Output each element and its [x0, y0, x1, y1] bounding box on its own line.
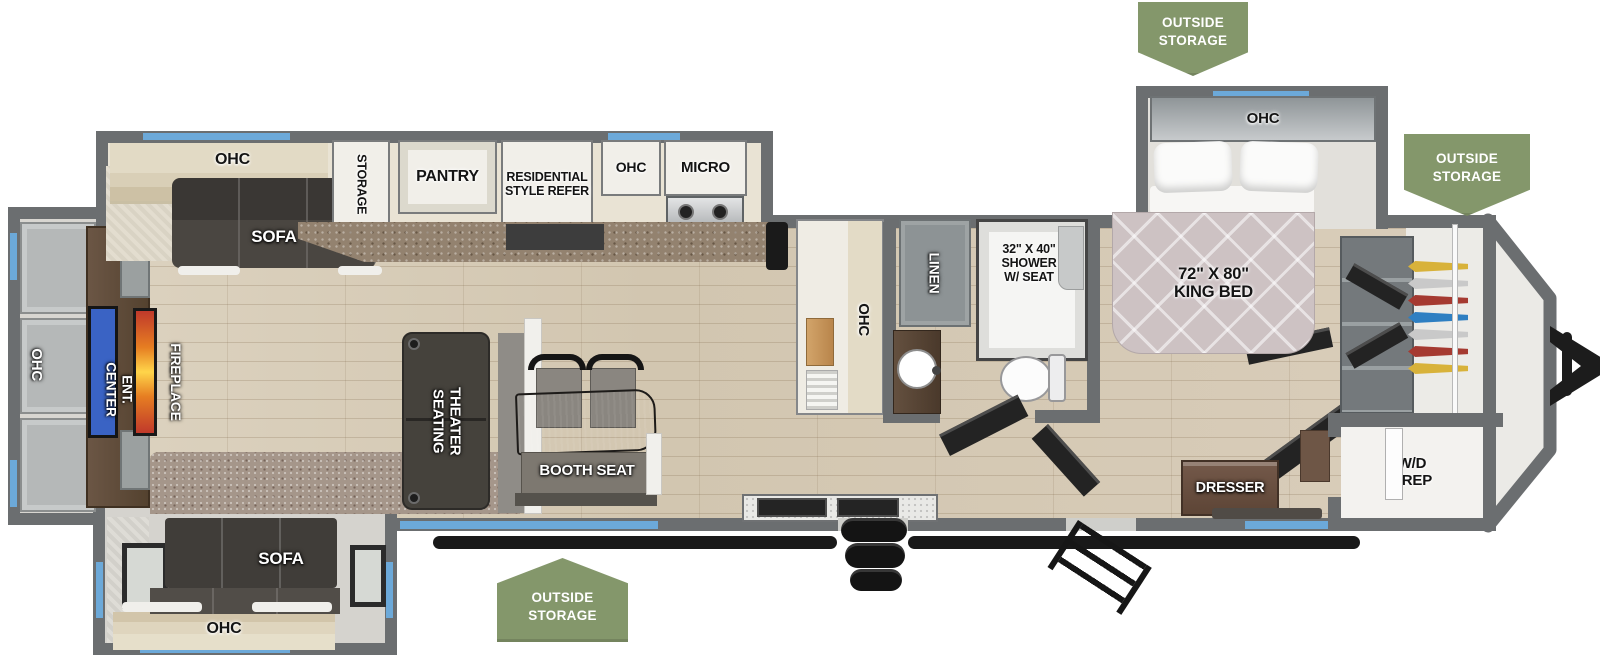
rear-ohc-cabinet [20, 222, 96, 314]
awning-rail [908, 536, 1360, 549]
dresser-label: DRESSER [1196, 480, 1265, 496]
toilet-tank [1048, 354, 1066, 402]
sofa-top-label: SOFA [251, 227, 297, 246]
clothes-item [1408, 311, 1468, 324]
front-nose-wall [1488, 220, 1550, 526]
fireplace-label: FIREPLACE [168, 343, 184, 421]
hitch-jack [1562, 332, 1572, 396]
ohc-bottom-label-wrap: OHC [113, 618, 335, 640]
refer-label: RESIDENTIAL STYLE REFER [505, 170, 589, 198]
window-accent [608, 133, 680, 140]
bed-bench [1300, 430, 1330, 482]
rear-ohc-label: OHC [27, 349, 44, 382]
booth-chair-back [528, 354, 586, 370]
clothes-item [1408, 260, 1468, 273]
shower-label: 32" X 40" SHOWER W/ SEAT [1001, 242, 1056, 284]
booth-table [515, 389, 657, 456]
sofa-bottom-label-wrap: SOFA [221, 550, 341, 568]
booth-label-wrap: BOOTH SEAT [521, 462, 653, 480]
badge-label: OUTSIDE STORAGE [528, 589, 597, 624]
badge-label: OUTSIDE STORAGE [1159, 14, 1228, 49]
stove-burner [678, 204, 694, 220]
clothes-item [1408, 362, 1468, 375]
awning-rail [433, 536, 837, 549]
ent-center-label-wrap: ENT. CENTER [102, 318, 136, 462]
clothes-item [1408, 345, 1468, 358]
linen-label-wrap: LINEN [899, 219, 971, 327]
ohc-bottom-label: OHC [207, 620, 242, 638]
rear-ohc-label-wrap: OHC [14, 322, 58, 408]
theater-label-wrap: THEATER SEATING [396, 332, 496, 510]
ohc-top-label: OHC [215, 151, 250, 169]
stove-burner [712, 204, 728, 220]
microwave: MICRO [664, 140, 747, 196]
wd-wall-left [1328, 413, 1341, 437]
window-accent [96, 562, 103, 618]
bed-pillow [1153, 141, 1233, 194]
bed-ohc-cabinet: OHC [1150, 96, 1376, 142]
ohc-top-label-wrap: OHC [150, 150, 315, 170]
ent-center-label: ENT. CENTER [103, 363, 134, 417]
bath-faucet [932, 366, 941, 375]
booth-chair-back [586, 354, 644, 370]
toilet-bowl [1000, 356, 1052, 402]
window-accent [143, 133, 290, 140]
clothes-item [1408, 294, 1468, 307]
sofa-bottom-label: SOFA [258, 549, 304, 568]
hitch-a-frame [1550, 326, 1600, 406]
hutch-cutting-board [806, 318, 834, 366]
island-sink-basin [757, 498, 827, 517]
window-accent [386, 562, 393, 618]
sofa-arm-cap [252, 602, 332, 612]
window-accent [10, 233, 17, 280]
booth-seat-base [515, 493, 657, 506]
clothes-item [1408, 277, 1468, 290]
bed-pillow [1239, 141, 1319, 194]
window-accent [400, 521, 658, 529]
king-bed-mattress: 72" X 80" KING BED [1112, 212, 1315, 354]
counter-end-panel [766, 222, 788, 270]
closet-pole [1452, 224, 1458, 414]
storage-label-wrap: STORAGE [332, 140, 390, 228]
fireplace-insert [133, 308, 157, 436]
rv-floorplan: OHC ENT. CENTER FIREPLACE OHC SOFA STORA… [0, 0, 1600, 662]
hutch-ohc-label: OHC [854, 304, 871, 337]
shower-label-wrap: 32" X 40" SHOWER W/ SEAT [976, 228, 1082, 298]
king-bed-label: 72" X 80" KING BED [1174, 265, 1253, 302]
wd-wall-top [1328, 413, 1503, 427]
wardrobe [1340, 236, 1414, 414]
theater-label: THEATER SEATING [429, 387, 464, 455]
counter-appliance-recess [506, 224, 604, 250]
floor-mat [1212, 508, 1322, 519]
kitchen-ohc-cabinet: OHC [601, 140, 661, 196]
linen-label: LINEN [927, 252, 943, 293]
hutch-vent-grill [806, 370, 838, 410]
entry-step [845, 543, 905, 568]
sofa-arm-cap [122, 602, 202, 612]
wd-prep-room: W/D PREP [1341, 427, 1483, 518]
badge-label: OUTSIDE STORAGE [1433, 150, 1502, 185]
booth-divider-panel [646, 433, 662, 495]
micro-label: MICRO [681, 160, 730, 177]
fireplace-label-wrap: FIREPLACE [158, 312, 194, 452]
island-sink-basin [837, 498, 899, 517]
storage-label: STORAGE [354, 154, 368, 214]
wd-door-leaf [1385, 428, 1403, 500]
rear-ohc-cabinet [20, 418, 96, 512]
closet-clothes [1408, 260, 1468, 392]
sofa-arm-cap [178, 266, 240, 275]
pantry-cabinet: PANTRY [398, 140, 497, 214]
entry-step [841, 518, 907, 542]
pantry-label: PANTRY [416, 168, 479, 186]
hutch-ohc-label-wrap: OHC [844, 282, 882, 358]
bath-wall-right [1087, 222, 1100, 423]
entry-step [850, 569, 902, 591]
booth-label: BOOTH SEAT [539, 463, 634, 480]
bed-ohc-label: OHC [1247, 111, 1280, 128]
bath-sink [897, 349, 937, 389]
clothes-item [1408, 328, 1468, 341]
slide-window [350, 545, 386, 607]
sofa-arm-cap [338, 266, 382, 275]
refrigerator: RESIDENTIAL STYLE REFER [501, 140, 593, 228]
wd-wall-left [1328, 497, 1341, 531]
window-accent [10, 460, 17, 507]
window-accent [1245, 521, 1330, 529]
kitchen-ohc-label: OHC [616, 160, 647, 176]
